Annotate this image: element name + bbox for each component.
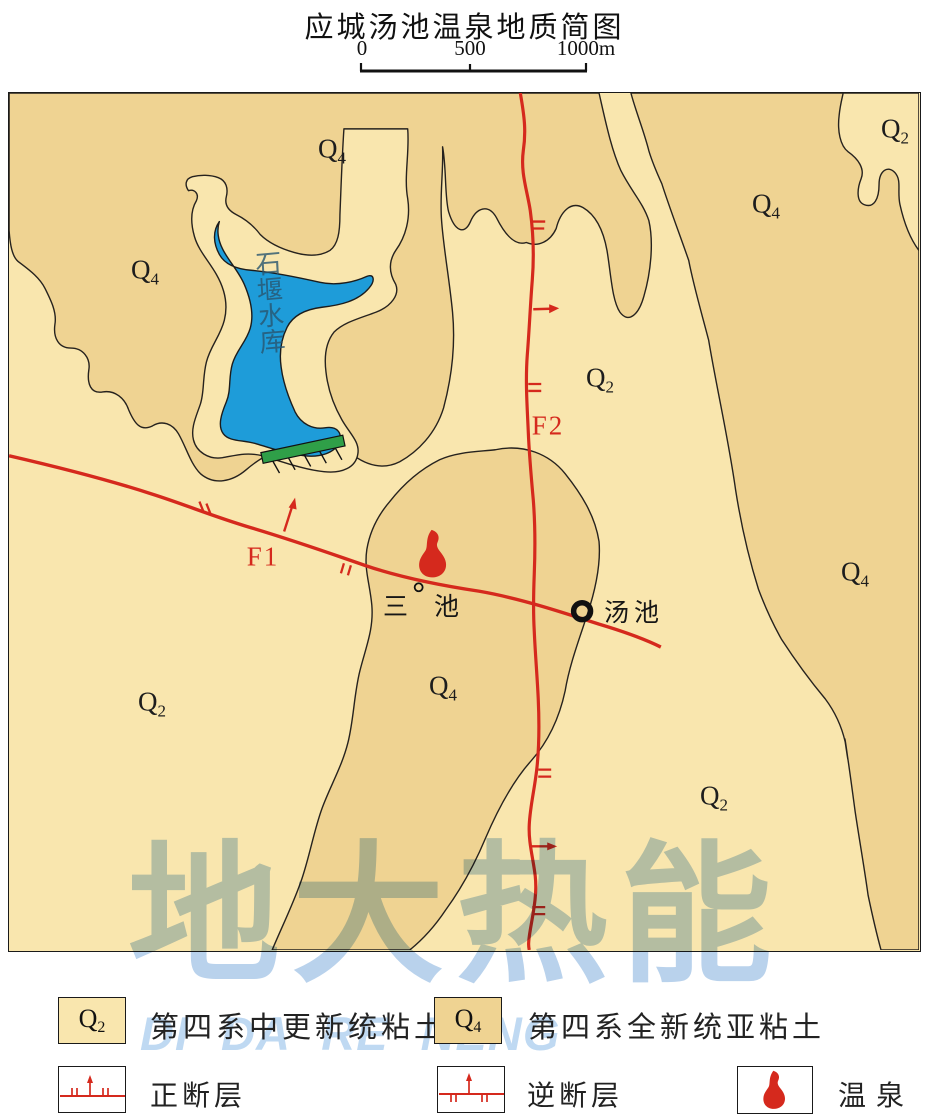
unit-label-q2: Q2 — [586, 363, 614, 398]
geologic-map — [8, 92, 921, 952]
unit-label-q2: Q2 — [881, 114, 909, 149]
legend-label-hot-spring: 温泉 — [838, 1074, 914, 1114]
scale-tick-label: 500 — [454, 36, 486, 61]
fault-label-f1: F1 — [247, 542, 280, 573]
legend-label-q2: 第四系中更新统粘土 — [150, 1004, 447, 1046]
unit-label-q4: Q4 — [318, 134, 346, 169]
unit-label-q4: Q4 — [841, 557, 869, 592]
legend-label-reverse-fault: 逆断层 — [527, 1074, 623, 1114]
fault-label-f2: F2 — [532, 411, 565, 442]
scale-tick-label: 1000m — [557, 36, 615, 61]
map-canvas — [9, 93, 919, 950]
legend-swatch-q2: Q2 — [58, 997, 126, 1044]
legend-swatch-hot-spring — [737, 1066, 813, 1114]
hot-spring-icon — [740, 1068, 810, 1112]
scale-tick-label: 0 — [357, 36, 368, 61]
watermark-cjk: 地大热能 — [128, 840, 784, 992]
unit-label-q2: Q2 — [138, 687, 166, 722]
unit-label-q4: Q4 — [429, 671, 457, 706]
scale-bar-line — [355, 60, 595, 74]
legend-label-normal-fault: 正断层 — [150, 1074, 246, 1114]
unit-label-q2: Q2 — [700, 781, 728, 816]
place-label-sanchi: 三池 — [383, 587, 485, 623]
place-label-tangchi: 汤池 — [604, 593, 664, 629]
legend-label-q4: 第四系全新统亚粘土 — [528, 1004, 825, 1046]
normal-fault-icon — [60, 1068, 125, 1112]
scale-bar: 0 500 1000m — [355, 36, 595, 76]
unit-label-q4: Q4 — [752, 189, 780, 224]
legend-swatch-reverse-fault — [437, 1066, 505, 1113]
legend-swatch-normal-fault — [58, 1066, 126, 1113]
unit-label-q4: Q4 — [131, 255, 159, 290]
reverse-fault-icon — [439, 1068, 504, 1112]
legend-swatch-q4: Q4 — [434, 997, 502, 1044]
page: { "title": "应城汤池温泉地质简图", "scale_bar": { … — [0, 0, 929, 1119]
reservoir-label: 石堰水库 — [253, 249, 286, 355]
